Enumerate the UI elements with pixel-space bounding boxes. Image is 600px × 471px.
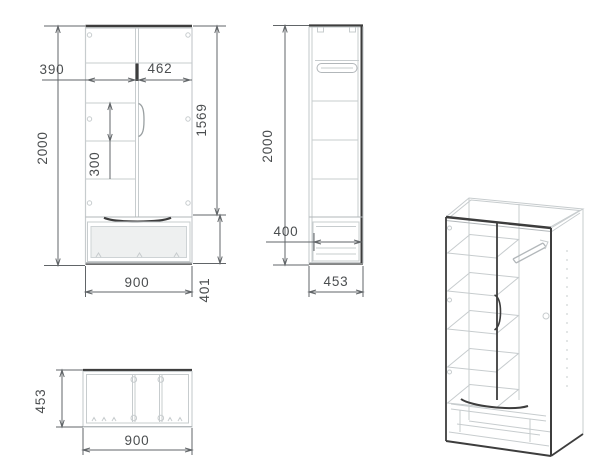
front-view-drawer bbox=[88, 218, 191, 262]
dim-top-width: 900 bbox=[125, 433, 150, 448]
dim-side-drawer-depth: 400 bbox=[274, 224, 299, 239]
top-view-dimensions: 453 900 bbox=[33, 370, 192, 455]
dim-front-left-width: 390 bbox=[40, 62, 65, 77]
front-view: 2000 390 462 300 1569 4 bbox=[35, 26, 226, 302]
door-handle-icon bbox=[139, 104, 145, 137]
dim-front-door-height: 1569 bbox=[194, 103, 209, 136]
hanging-rail-icon bbox=[315, 61, 359, 73]
iso-outline bbox=[446, 217, 583, 456]
dim-front-width: 900 bbox=[125, 275, 150, 290]
drawing-canvas: 2000 390 462 300 1569 4 bbox=[0, 0, 600, 471]
top-view: 453 900 bbox=[33, 370, 192, 455]
iso-hanging-rail-icon bbox=[513, 240, 548, 263]
isometric-view bbox=[446, 198, 583, 456]
front-view-cabinet bbox=[86, 26, 193, 264]
front-view-dimensions: 2000 390 462 300 1569 4 bbox=[35, 26, 226, 302]
dim-front-drawer-height: 401 bbox=[197, 278, 212, 303]
technical-drawing-sheet: 2000 390 462 300 1569 4 bbox=[0, 0, 600, 471]
dim-front-height: 2000 bbox=[35, 131, 50, 164]
drawer-handle-icon bbox=[104, 218, 171, 222]
top-view-cabinet bbox=[83, 370, 192, 427]
dim-side-height: 2000 bbox=[260, 129, 275, 162]
side-view-cabinet bbox=[309, 26, 363, 264]
dim-top-depth: 453 bbox=[33, 389, 48, 414]
dim-side-depth: 453 bbox=[324, 274, 349, 289]
side-view: 2000 400 453 bbox=[260, 26, 363, 298]
dim-front-shelf-spacing: 300 bbox=[87, 152, 102, 177]
dim-front-right-width: 462 bbox=[148, 61, 173, 76]
